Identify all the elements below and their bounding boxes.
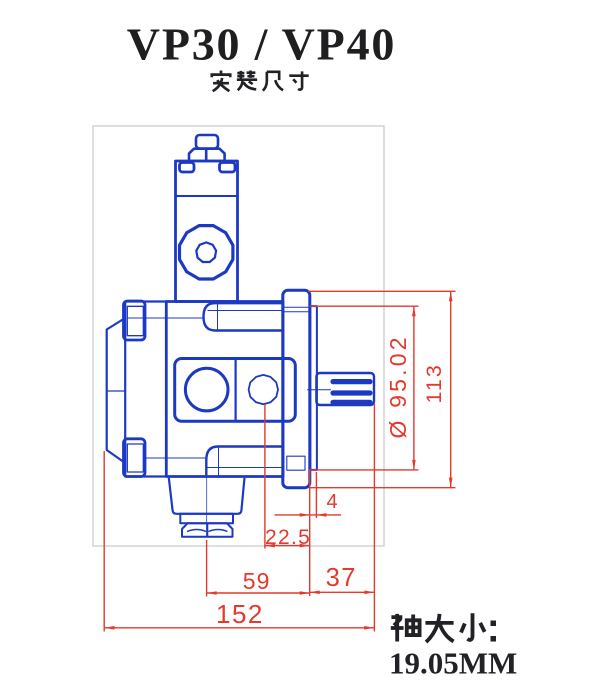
svg-text:59: 59: [243, 568, 271, 594]
svg-text:152: 152: [216, 599, 264, 629]
svg-text:VP30 / VP40: VP30 / VP40: [127, 19, 396, 70]
svg-text:4: 4: [327, 491, 338, 513]
svg-text:19.05MM: 19.05MM: [389, 646, 517, 681]
svg-text:Ø 95.02: Ø 95.02: [385, 334, 411, 438]
svg-text:37: 37: [326, 564, 357, 592]
svg-text:113: 113: [422, 363, 446, 403]
svg-text:22.5: 22.5: [265, 526, 311, 549]
